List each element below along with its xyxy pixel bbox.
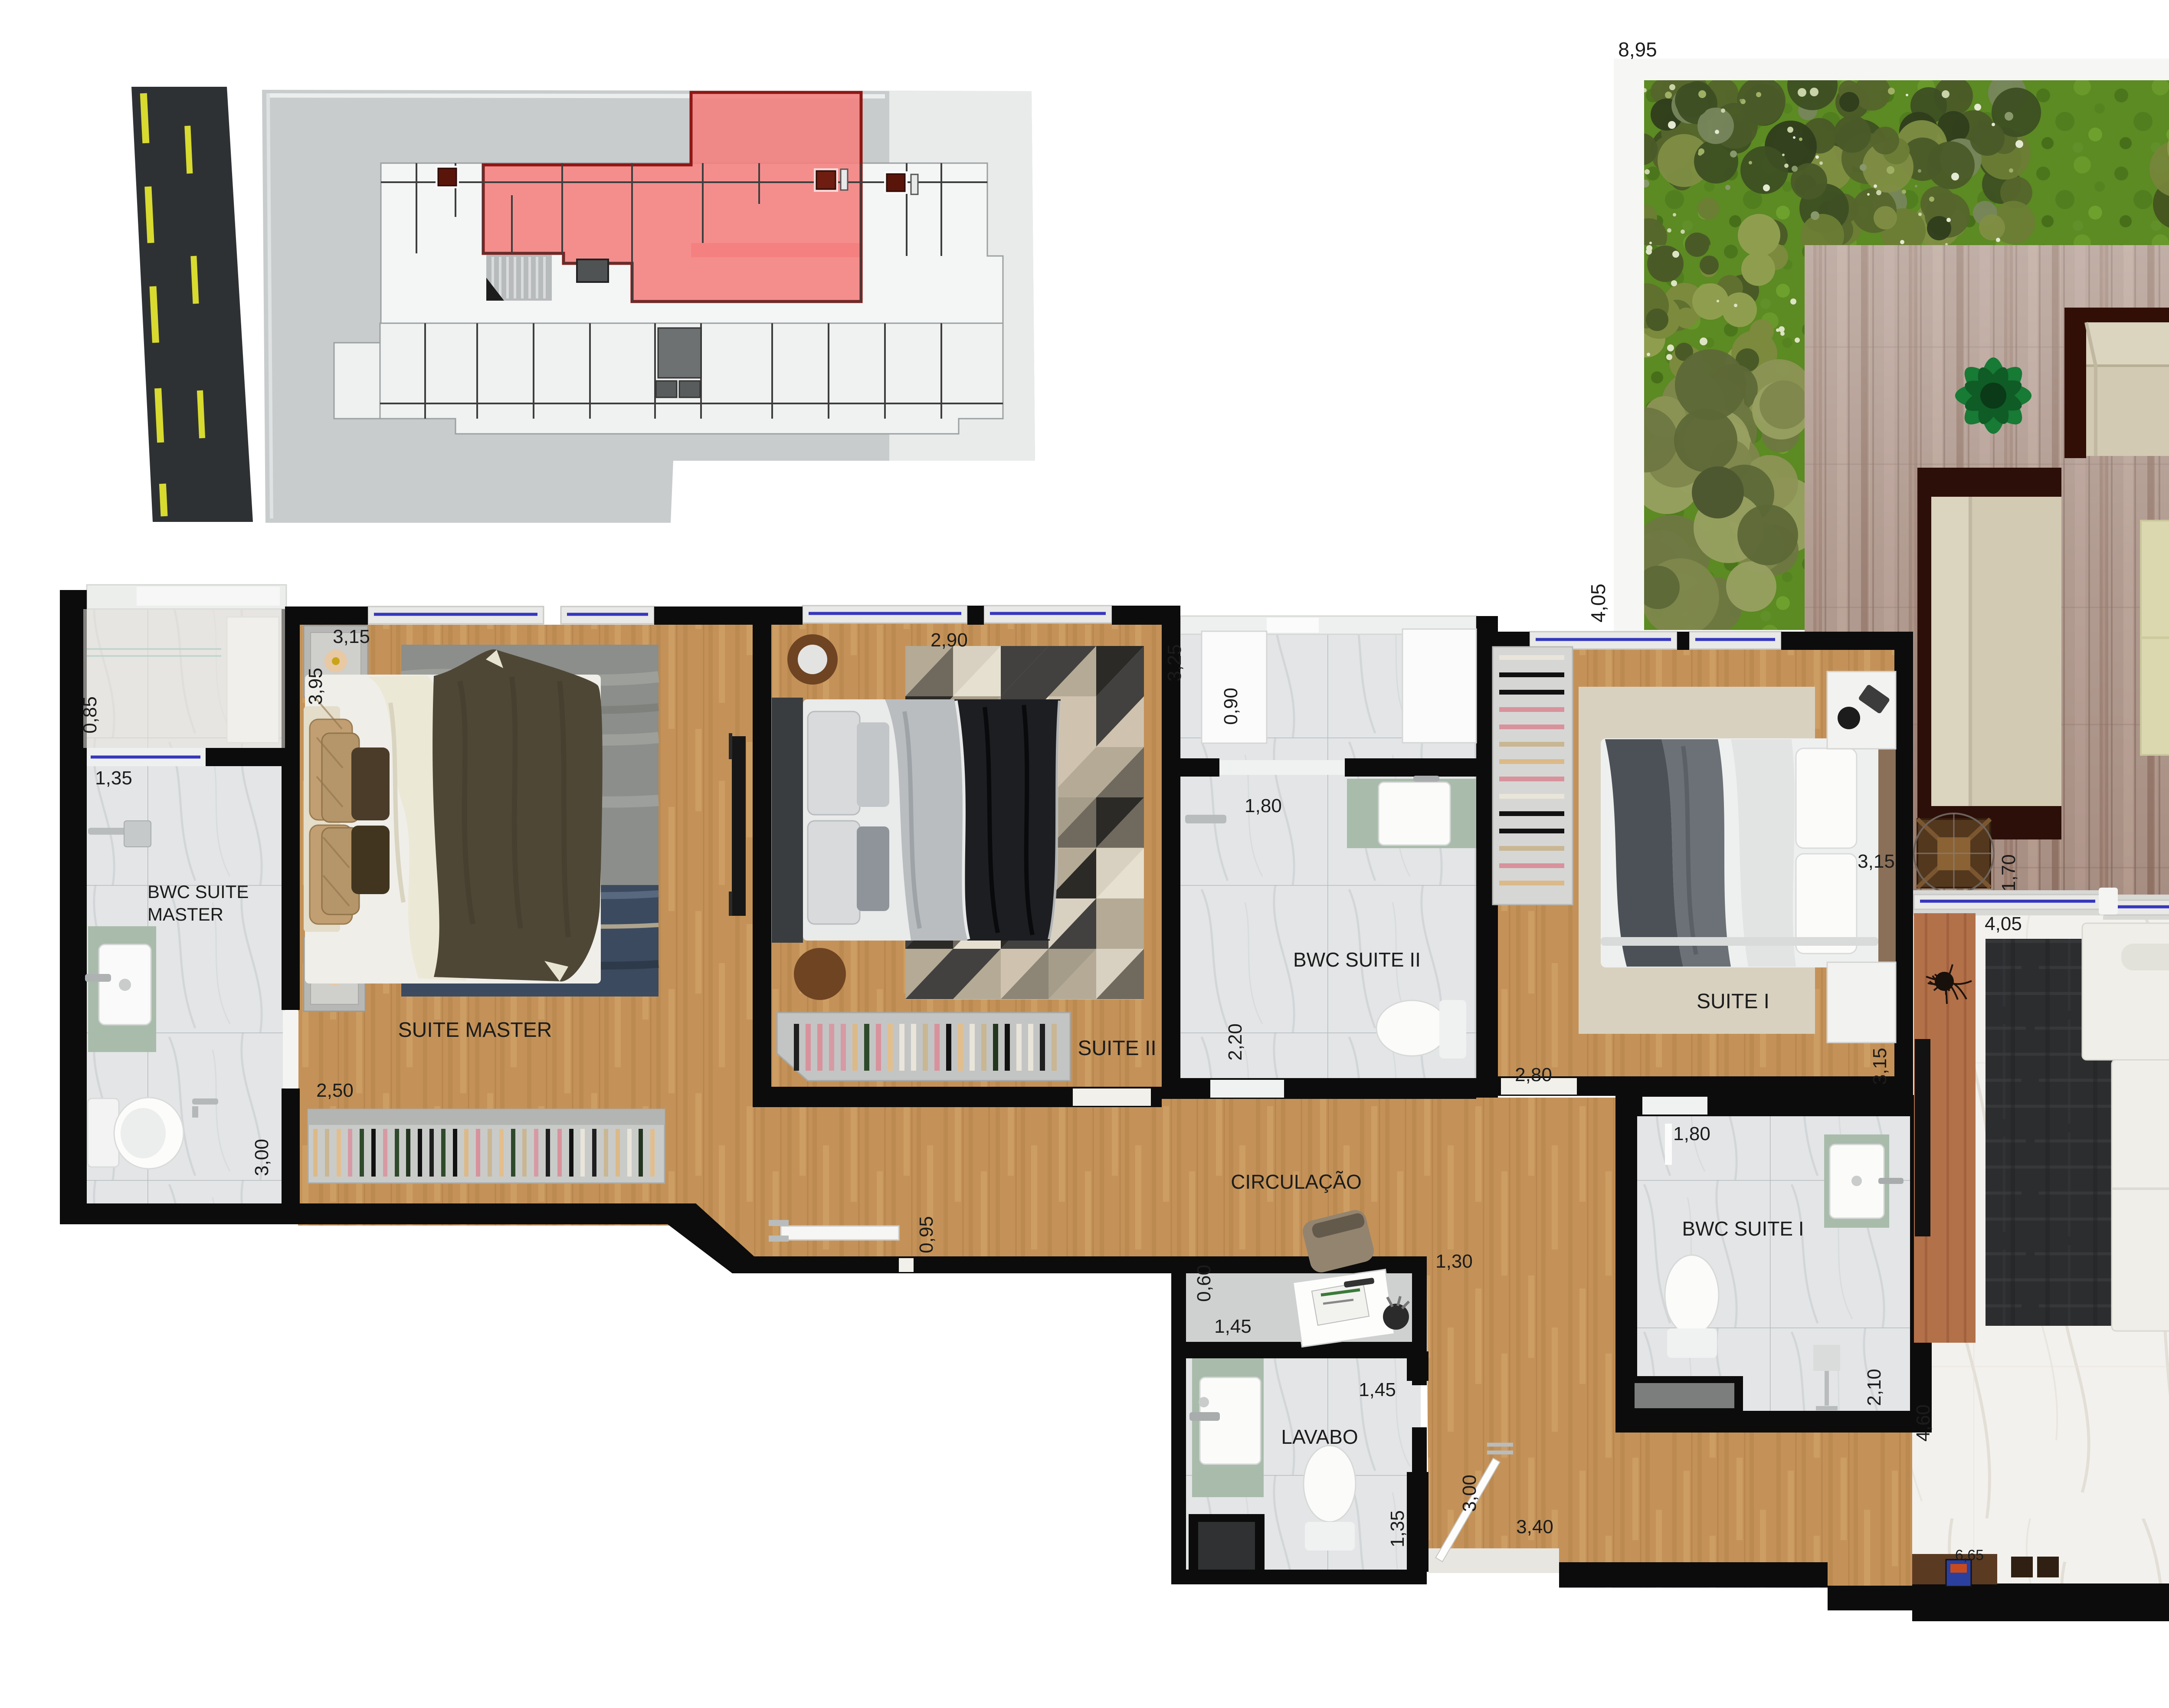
svg-text:3,15: 3,15 [1858,851,1895,872]
svg-text:1,30: 1,30 [1435,1251,1473,1272]
svg-text:3,15: 3,15 [1869,1048,1891,1085]
svg-text:3,40: 3,40 [1516,1516,1553,1538]
svg-text:1,35: 1,35 [1387,1510,1408,1547]
svg-text:3,95: 3,95 [305,668,326,705]
svg-text:2,20: 2,20 [1225,1023,1246,1061]
svg-text:0,90: 0,90 [1220,688,1242,725]
svg-text:8,95: 8,95 [1618,38,1657,61]
svg-text:2,80: 2,80 [1515,1064,1552,1085]
svg-text:0,85: 0,85 [79,696,101,734]
svg-text:0,95: 0,95 [916,1216,937,1253]
svg-text:3,15: 3,15 [333,626,370,647]
svg-text:3,25: 3,25 [1164,644,1185,682]
svg-text:1,80: 1,80 [1245,795,1282,816]
svg-text:6,65: 6,65 [1955,1547,1984,1564]
svg-text:BWC SUITE: BWC SUITE [147,882,249,902]
svg-text:MASTER: MASTER [147,904,223,924]
svg-text:BWC SUITE II: BWC SUITE II [1293,948,1421,971]
svg-text:3,00: 3,00 [1459,1475,1480,1512]
svg-text:2,10: 2,10 [1864,1369,1885,1406]
svg-text:SUITE I: SUITE I [1697,990,1769,1013]
svg-text:1,70: 1,70 [1998,854,2019,892]
svg-text:SUITE MASTER: SUITE MASTER [398,1019,552,1042]
svg-text:2,90: 2,90 [931,629,968,651]
svg-text:0,60: 0,60 [1193,1265,1215,1302]
svg-text:4,60: 4,60 [1913,1404,1934,1442]
svg-text:4,05: 4,05 [1587,584,1609,623]
svg-text:CIRCULAÇÃO: CIRCULAÇÃO [1231,1170,1362,1193]
svg-text:4,05: 4,05 [1985,913,2022,934]
svg-text:2,50: 2,50 [316,1080,354,1101]
svg-text:1,45: 1,45 [1359,1379,1396,1400]
svg-text:LAVABO: LAVABO [1281,1426,1358,1448]
svg-text:1,80: 1,80 [1673,1123,1710,1144]
svg-text:SUITE II: SUITE II [1078,1037,1156,1060]
svg-text:BWC SUITE I: BWC SUITE I [1682,1217,1804,1240]
svg-text:1,35: 1,35 [95,767,132,789]
svg-text:3,00: 3,00 [251,1139,272,1176]
svg-text:1,45: 1,45 [1214,1316,1252,1337]
